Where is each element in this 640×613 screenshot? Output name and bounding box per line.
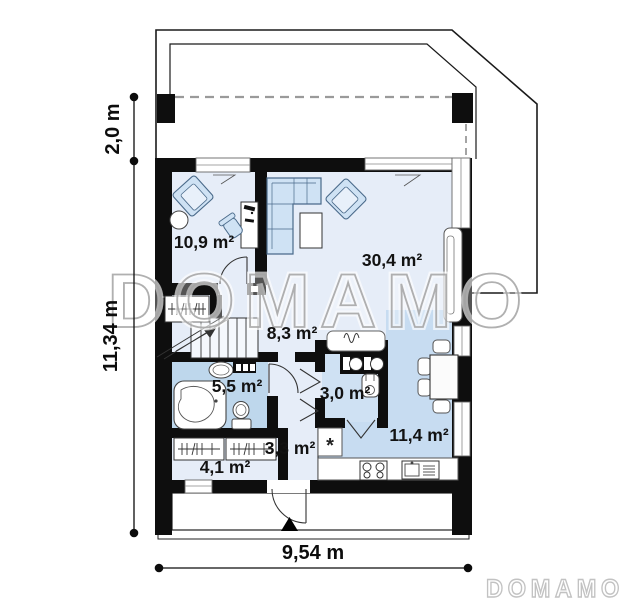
wall-utility-west-upper xyxy=(315,340,325,372)
floor-plan-svg: * xyxy=(0,0,640,613)
chair-icon xyxy=(418,379,431,396)
stove-icon xyxy=(360,461,387,480)
bathtub-drain xyxy=(214,399,217,402)
terrace-column-right xyxy=(452,93,473,123)
entrance-porch xyxy=(158,493,469,539)
wall-bath-corner xyxy=(267,352,278,362)
dim-label-terrace-depth: 2,0 m xyxy=(102,103,124,154)
dim-label-house-width: 9,54 m xyxy=(282,542,344,564)
floor-plan-page: * xyxy=(0,0,640,613)
washer-dryer-icon xyxy=(340,354,386,374)
room-label-hall: 8,3 m² xyxy=(267,323,318,343)
wall-utility-south-left xyxy=(315,418,345,428)
wall-utility-south-right xyxy=(377,418,388,428)
radiator-icon xyxy=(233,361,256,373)
coffee-table-icon xyxy=(300,213,322,248)
domamo-logo: DOMAMO xyxy=(486,575,624,603)
window-living-top xyxy=(365,158,452,170)
porch-pillar-left xyxy=(155,480,172,533)
kitchen-sink-icon xyxy=(402,461,439,479)
watermark-center: DOMAMO DOMAMO xyxy=(108,259,533,344)
window-living-corner xyxy=(452,158,470,228)
side-table-icon xyxy=(170,211,188,229)
fridge-symbol: * xyxy=(326,435,334,457)
room-label-entry: 3,3 m² xyxy=(265,438,316,458)
chair-icon xyxy=(433,400,450,413)
room-label-utility: 3,0 m² xyxy=(320,383,371,403)
window-kitchen-lower xyxy=(454,402,470,456)
fridge-icon: * xyxy=(318,428,342,457)
room-label-cabinet: 10,9 m² xyxy=(174,232,234,252)
room-label-wardrobe: 4,1 m² xyxy=(200,457,251,477)
porch-floor xyxy=(172,493,455,530)
terrace-inner-outline xyxy=(170,44,476,159)
wall-left xyxy=(155,158,172,535)
terrace-column-left xyxy=(157,94,175,123)
porch-step xyxy=(158,530,469,539)
porch-pillar-right xyxy=(455,480,472,533)
svg-text:DOMAMO: DOMAMO xyxy=(108,259,533,344)
chair-icon xyxy=(418,358,431,375)
window-cabinet xyxy=(196,158,250,172)
dining-table-icon xyxy=(430,355,458,399)
wall-bath-east xyxy=(267,396,278,430)
window-wardrobe xyxy=(185,480,212,493)
room-label-living: 30,4 m² xyxy=(362,250,422,270)
dim-label-house-depth: 11,34 m xyxy=(100,300,122,372)
entrance-opening xyxy=(267,480,310,493)
room-label-kitchen: 11,4 m² xyxy=(389,425,449,445)
room-label-bathroom: 5,5 m² xyxy=(212,376,263,396)
